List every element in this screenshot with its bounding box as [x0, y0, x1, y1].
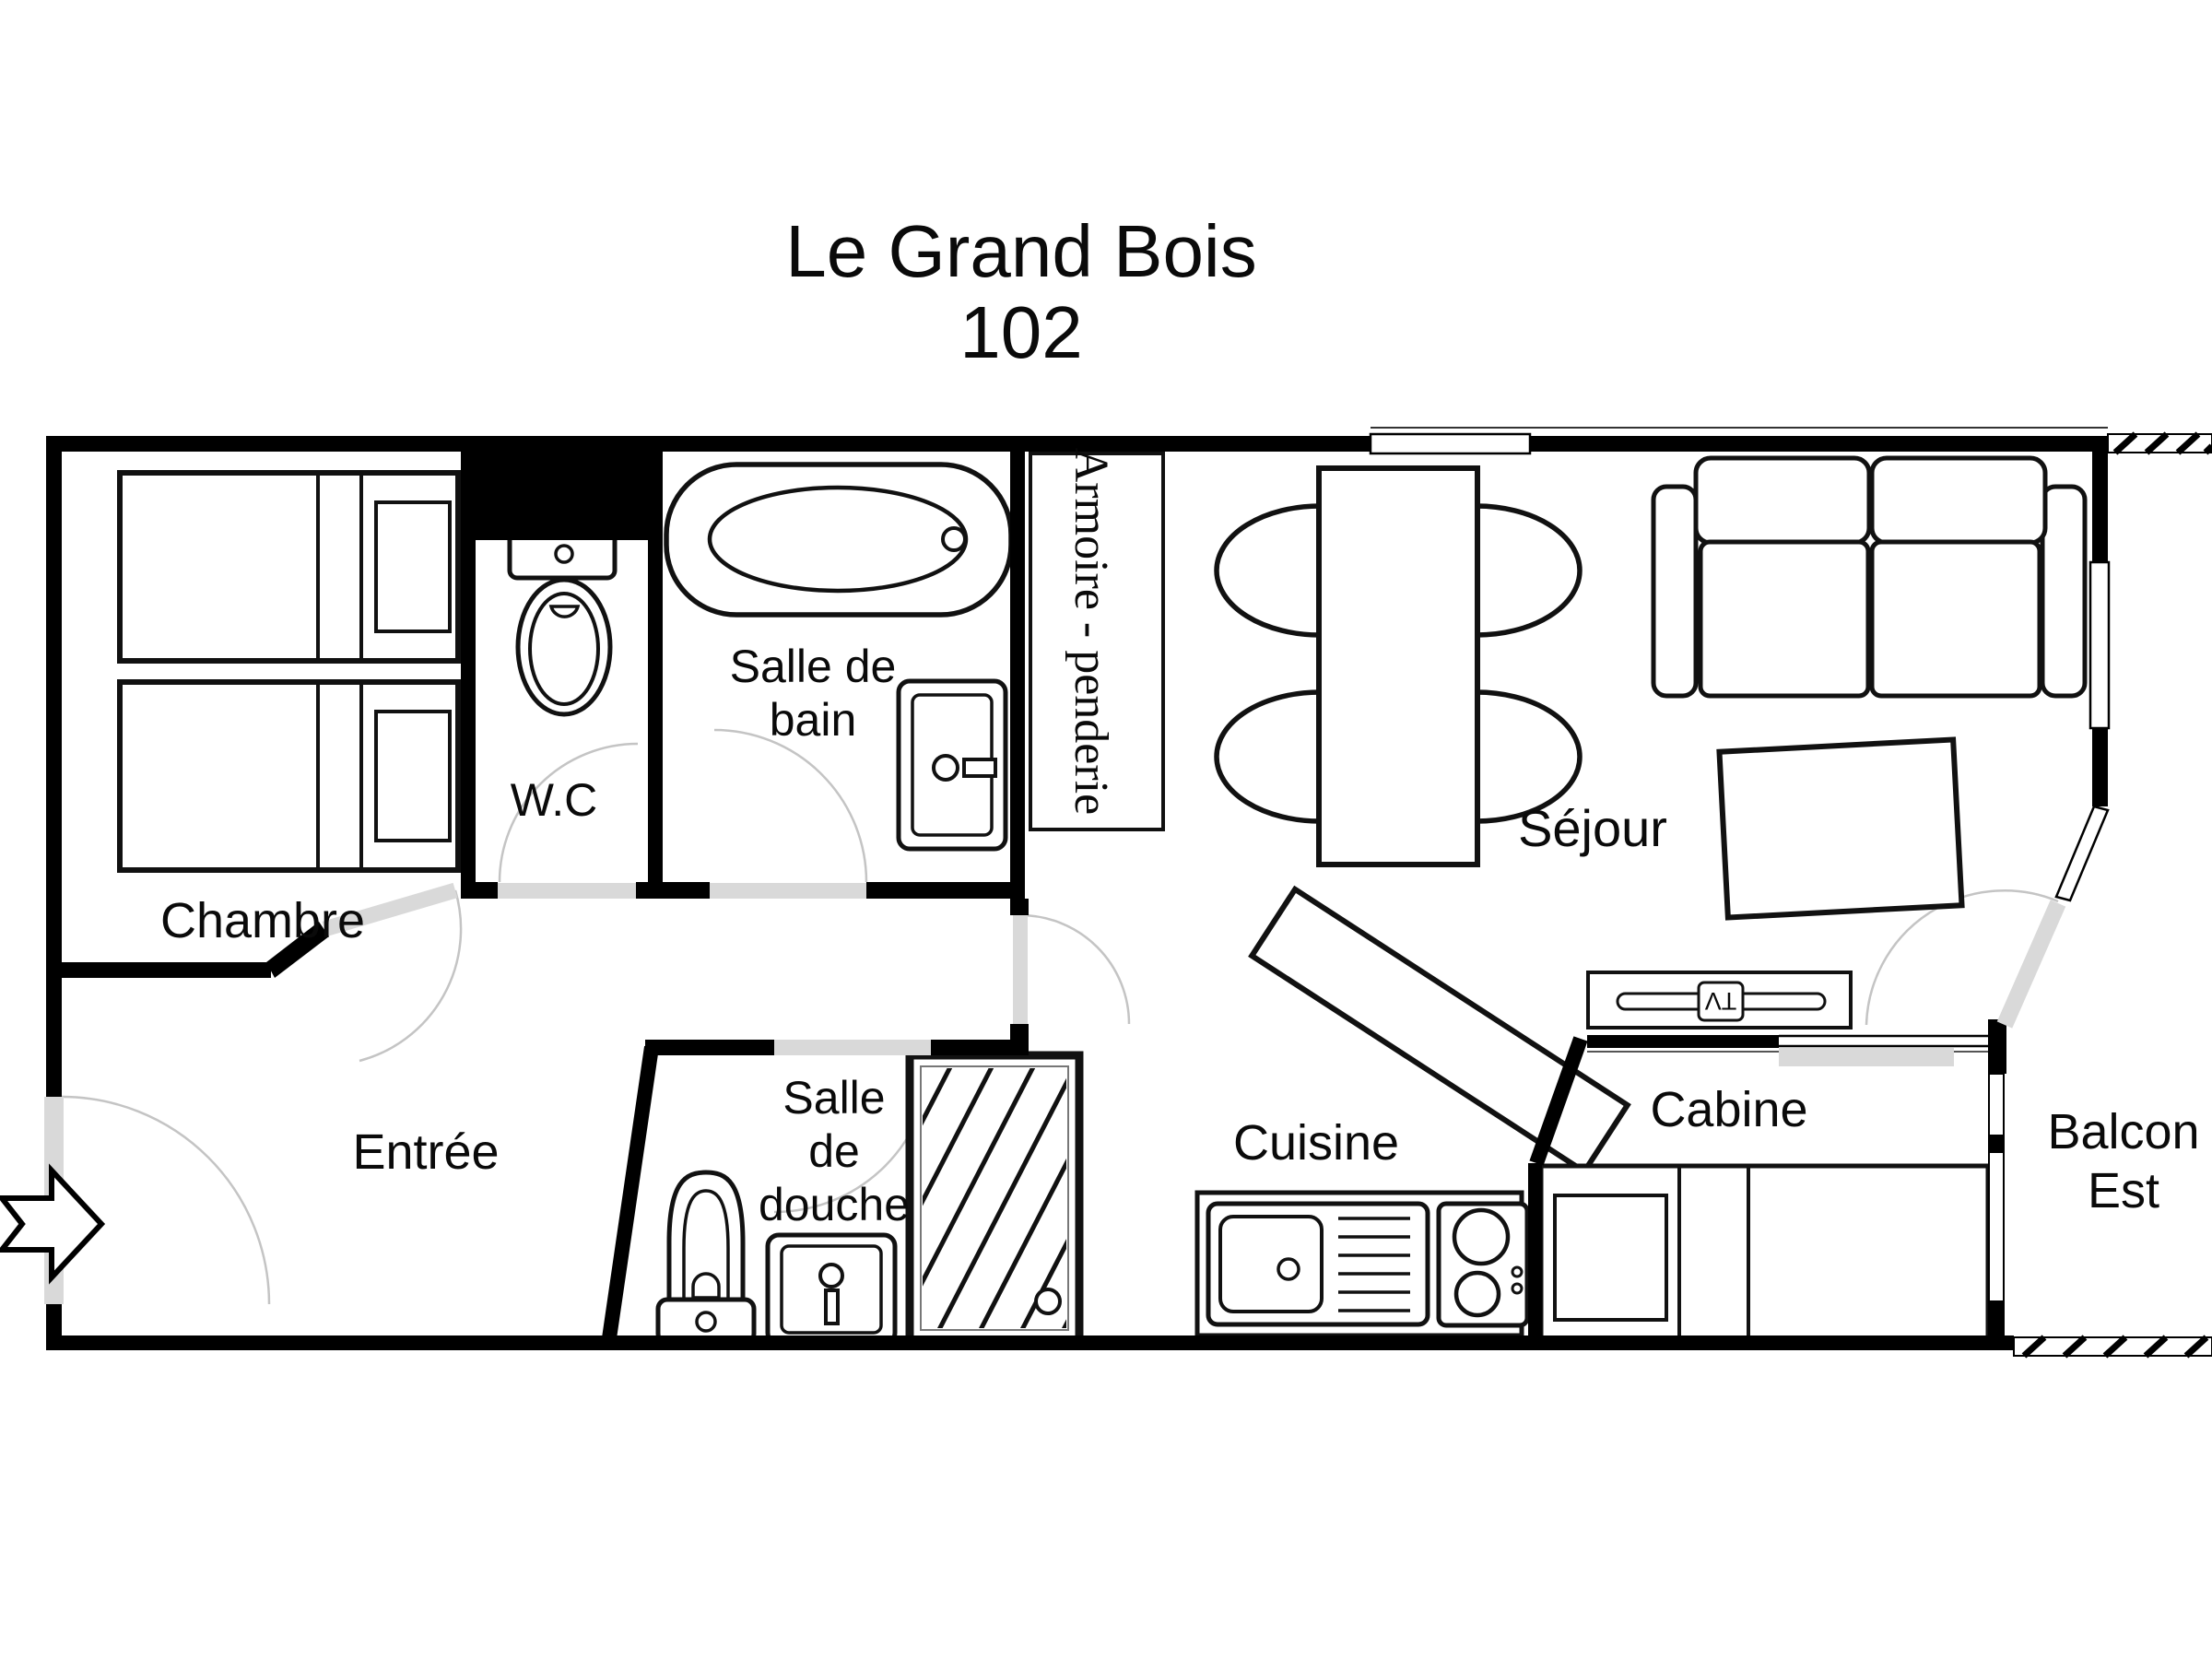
- label-armoire: Armoire - penderie: [1065, 448, 1117, 815]
- wall-corridor-b: [636, 882, 710, 899]
- sofa-icon: [1653, 458, 2085, 696]
- wall-chambre-bottom: [50, 962, 271, 978]
- railing-bottom: [2014, 1337, 2212, 1356]
- floor-plan-drawing: Le Grand Bois 102 Chambre W.C Salle de b…: [0, 0, 2212, 1659]
- stove-icon: [1439, 1204, 1527, 1325]
- label-salle-de-bain-1: Salle de: [730, 641, 897, 692]
- bathtub-icon: [666, 465, 1011, 615]
- bath-door-leaf: [710, 883, 866, 899]
- wall-right-mid: [2092, 728, 2108, 806]
- wall-right-mullion: [1988, 1135, 2005, 1152]
- wall-right-bottom: [1988, 1301, 2005, 1341]
- label-chambre: Chambre: [160, 893, 365, 948]
- sejour-door-leaf: [1013, 915, 1028, 1024]
- label-salle-de-bain-2: bain: [770, 694, 857, 746]
- wall-corridor-c: [866, 882, 1025, 899]
- kitchen-sink-icon: [1208, 1204, 1428, 1324]
- wall-top-left: [46, 436, 1373, 452]
- single-bed-icon: [120, 682, 458, 870]
- wall-balcony-corner: [1988, 1019, 2006, 1074]
- bunk-bed: [1541, 1166, 1988, 1339]
- wall-cabine-top: [1587, 1035, 1779, 1048]
- wall-bath-right: [1010, 436, 1025, 899]
- window-right-upper: [2090, 562, 2109, 728]
- wall-corridor-a: [461, 882, 498, 899]
- wall-cabine-left: [1528, 1163, 1542, 1339]
- toilet-icon: [510, 530, 615, 714]
- wall-right-upper: [2092, 436, 2108, 562]
- label-sejour: Séjour: [1518, 799, 1667, 857]
- door-post-top: [1010, 899, 1029, 915]
- washbasin-icon: [768, 1235, 895, 1344]
- label-tv: TV: [1705, 987, 1737, 1015]
- douche-door-leaf: [774, 1040, 931, 1055]
- wall-wc-right: [648, 540, 663, 899]
- floor-plan-page: Le Grand Bois 102 Chambre W.C Salle de b…: [0, 0, 2212, 1659]
- window-right-lower-1: [1989, 1074, 2004, 1135]
- plan-title-line1: Le Grand Bois: [785, 210, 1256, 292]
- window-right-lower-2: [1989, 1152, 2004, 1301]
- wall-wc-left: [461, 540, 476, 899]
- railing-top: [2108, 434, 2212, 453]
- single-bed-icon: [120, 473, 458, 661]
- label-balcon-2: Est: [2088, 1163, 2159, 1218]
- label-cuisine: Cuisine: [1233, 1115, 1399, 1171]
- wc-door-leaf: [498, 883, 636, 899]
- label-wc: W.C: [511, 774, 597, 826]
- label-balcon-1: Balcon: [2047, 1104, 2199, 1159]
- washbasin-icon: [899, 681, 1006, 849]
- label-douche-3: douche: [759, 1179, 910, 1230]
- wall-douche-top-right: [931, 1040, 1025, 1055]
- dining-table: [1319, 468, 1477, 865]
- plan-title-line2: 102: [959, 291, 1082, 373]
- label-douche-1: Salle: [782, 1072, 885, 1124]
- wall-bottom: [46, 1335, 2014, 1350]
- cabine-sliding-door-leaf: [1779, 1048, 1954, 1066]
- label-entree: Entrée: [352, 1124, 499, 1180]
- coffee-table: [1719, 739, 1961, 917]
- label-cabine: Cabine: [1650, 1082, 1807, 1137]
- wall-douche-top-left: [645, 1040, 774, 1055]
- label-douche-2: de: [808, 1125, 860, 1177]
- wall-top-right: [1530, 436, 2108, 452]
- wall-left-upper: [46, 436, 62, 1097]
- wc-room: [510, 530, 615, 714]
- window-top: [1371, 434, 1530, 453]
- duct-shaft: [461, 451, 663, 540]
- bidet-icon: [658, 1172, 754, 1343]
